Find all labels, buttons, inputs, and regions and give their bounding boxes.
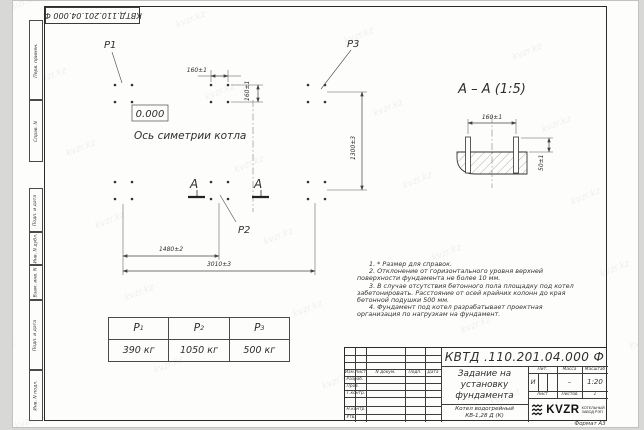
technical-notes: 1. * Размер для справок. 2. Отклонение о… [357, 261, 585, 319]
mass-label: Масса [557, 366, 582, 373]
margin-field-label: Справ. N [34, 120, 39, 141]
scale-label: Масштаб [582, 366, 608, 373]
note-2: 2. Отклонение от горизонтального уровня … [357, 268, 585, 282]
margin-field-sprav-n: Справ. N [29, 100, 43, 162]
lit-value: И [528, 373, 538, 391]
load-table-value-p2: 1050 кг [169, 340, 229, 362]
note-4: 4. Фундамент под котел разрабатывает про… [357, 304, 585, 318]
document-title-line: установку [461, 380, 508, 391]
margin-field-label: Перв. примен. [34, 43, 39, 78]
scale-value: 1:20 [582, 373, 608, 391]
load-table: P1 P2 P3 390 кг 1050 кг 500 кг [108, 317, 290, 362]
load-table-value-p1: 390 кг [109, 340, 169, 362]
load-table-value-row: 390 кг 1050 кг 500 кг [109, 340, 289, 362]
col-ndokum: N докум. [366, 369, 405, 376]
product-name-line: КВ-1,28 Д (К) [465, 413, 504, 420]
margin-field-label: Подп. и дата [34, 194, 39, 225]
sheets-value: 1 [582, 391, 608, 398]
margin-field-inv-dubl: Инв. N дубл. [29, 232, 43, 265]
margin-field-label: Инв. N дубл. [34, 233, 39, 263]
load-table-header-p3: P3 [230, 318, 289, 340]
document-title-line: Задание на [458, 369, 511, 380]
margin-field-label: Инв. N подл. [34, 380, 39, 410]
kvzr-logo-icon [531, 404, 544, 416]
top-rotated-stamp: КВТД.110.201.04.000 Ф [45, 7, 140, 24]
margin-field-podp-data-1: Подп. и дата [29, 188, 43, 232]
product-name: Котел водогрейный КВ-1,28 Д (К) [441, 404, 528, 422]
margin-field-inv-podl: Инв. N подл. [29, 370, 43, 421]
mass-value: – [557, 373, 582, 391]
lit-label: Лит. [528, 366, 557, 373]
load-table-header-p1: P1 [109, 318, 169, 340]
sheet-label: Лист [528, 391, 557, 398]
product-name-line: Котел водогрейный [455, 406, 514, 413]
row-prov: Пров. [345, 383, 368, 390]
note-3: 3. В случае отсутствия бетонного пола пл… [357, 283, 585, 305]
sheets-label: Листов [557, 391, 582, 398]
row-tkontr: Т.контр. [345, 390, 368, 397]
col-data: Дата [425, 369, 441, 376]
load-table-header-row: P1 P2 P3 [109, 318, 289, 340]
col-list: Лист [355, 369, 366, 376]
load-table-value-p3: 500 кг [230, 340, 289, 362]
margin-field-vzam-inv: Взам. инв. N [29, 265, 43, 300]
document-designation: КВТД .110.201.04.000 Ф [441, 348, 608, 366]
row-nkontr: Н.контр. [345, 406, 368, 414]
top-stamp-text: КВТД.110.201.04.000 Ф [44, 11, 142, 20]
kvzr-logo-caption: КОТЕЛЬНЫЙ ЗАВОД РЭП [582, 406, 605, 414]
kvzr-logo: KVZR КОТЕЛЬНЫЙ ЗАВОД РЭП [528, 398, 608, 422]
p-sub: 2 [200, 324, 204, 332]
format-note: Формат А3 [545, 421, 635, 427]
kvzr-logo-text: KVZR [546, 404, 579, 416]
margin-field-perv-primen: Перв. примен. [29, 20, 43, 100]
drawing-sheet-page: kvzr.kz [0, 0, 644, 430]
row-razrab: Разраб. [345, 376, 368, 383]
document-title: Задание на установку фундамента [441, 366, 528, 404]
load-table-header-p2: P2 [169, 318, 229, 340]
p-sub: 1 [140, 324, 144, 332]
col-izm: Изм. [345, 369, 355, 376]
title-block: Изм. Лист N докум. Подп. Дата Разраб. Пр… [344, 347, 607, 421]
p-sub: 3 [260, 324, 264, 332]
margin-field-podp-data-2: Подп. и дата [29, 300, 43, 370]
margin-field-label: Подп. и дата [34, 319, 39, 350]
row-utv: Утв. [345, 414, 368, 422]
col-podp: Подп. [405, 369, 425, 376]
margin-field-label: Взам. инв. N [34, 268, 39, 298]
kvzr-caption-line: ЗАВОД РЭП [582, 410, 605, 414]
document-title-line: фундамента [455, 391, 513, 402]
